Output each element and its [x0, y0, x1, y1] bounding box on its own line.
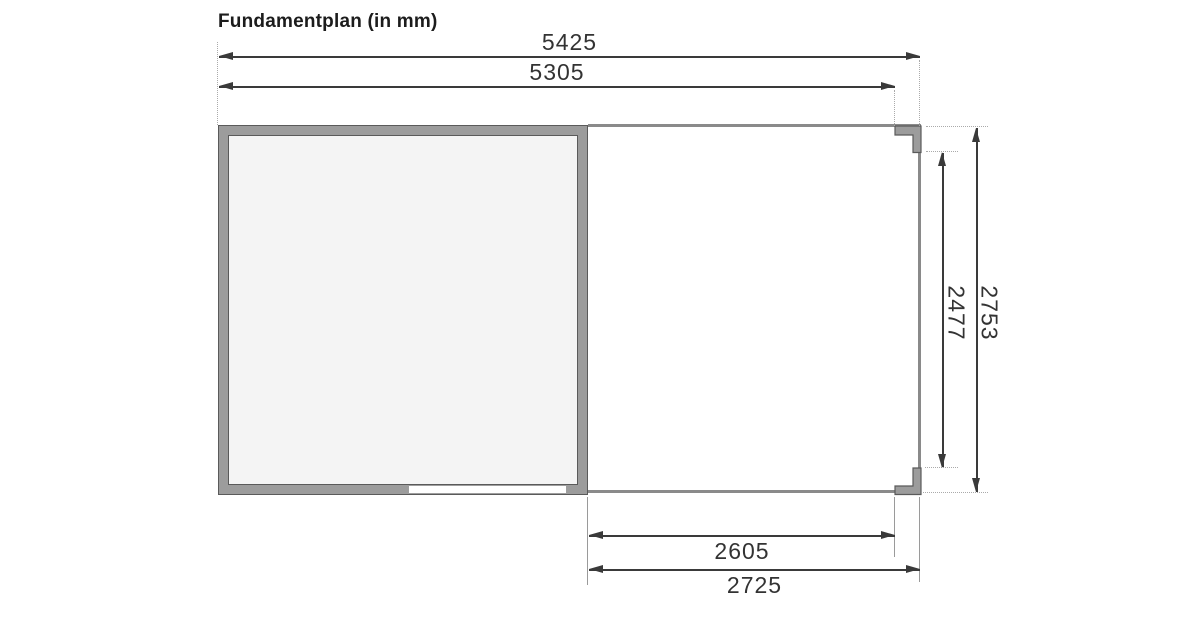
dimension-line — [219, 56, 920, 58]
leader-line-right-top-outer — [926, 126, 988, 127]
dimension-label: 5425 — [219, 31, 920, 54]
arrow-left-icon — [589, 531, 603, 539]
dimension-line — [219, 86, 895, 88]
corner-post-bottom-right — [894, 467, 922, 496]
leader-line-right-bottom-outer — [923, 492, 988, 493]
dimension-line — [589, 569, 920, 571]
dimension-line — [589, 535, 895, 537]
dimension-label: 2477 — [945, 285, 968, 340]
corner-post-top-right — [894, 125, 922, 154]
annex-bottom-edge — [588, 490, 897, 493]
page-title: Fundamentplan (in mm) — [218, 11, 438, 33]
annex-right-edge — [918, 124, 921, 494]
extension-line-top-inner — [894, 90, 895, 126]
extension-line-top-outer — [919, 60, 920, 126]
arrow-down-icon — [972, 478, 980, 492]
arrow-up-icon — [972, 128, 980, 142]
arrow-right-icon — [906, 565, 920, 573]
dimension-label: 2605 — [589, 540, 895, 563]
dimension-label: 5305 — [219, 61, 895, 84]
extension-line-bottom-left — [587, 497, 588, 585]
arrow-left-icon — [589, 565, 603, 573]
arrow-down-icon — [938, 454, 946, 468]
dimension-label: 2725 — [589, 574, 920, 597]
dimension-label: 2753 — [978, 285, 1001, 340]
arrow-right-icon — [881, 531, 895, 539]
arrow-up-icon — [938, 152, 946, 166]
annex-top-edge — [588, 124, 921, 127]
main-building-interior — [228, 135, 578, 485]
main-building-outline — [218, 125, 588, 495]
extension-line-left — [217, 42, 218, 125]
foundation-plan-canvas: Fundamentplan (in mm) 5425 5305 — [0, 0, 1200, 629]
door-opening — [408, 485, 567, 494]
